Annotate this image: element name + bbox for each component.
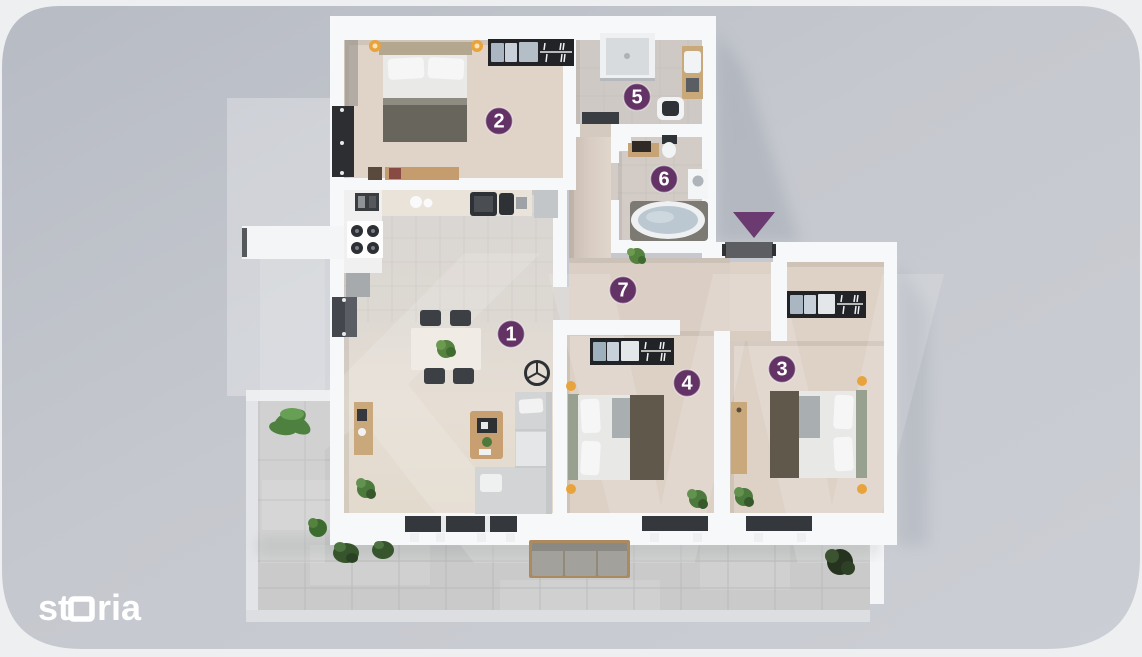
svg-text:5: 5 [631, 87, 642, 109]
svg-text:6: 6 [658, 169, 669, 191]
svg-text:2: 2 [493, 111, 504, 133]
svg-text:1: 1 [505, 324, 516, 346]
svg-text:3: 3 [776, 359, 787, 381]
svg-text:ria: ria [97, 587, 142, 628]
svg-text:st: st [38, 587, 70, 628]
svg-text:7: 7 [617, 280, 628, 302]
svg-text:4: 4 [681, 373, 693, 395]
